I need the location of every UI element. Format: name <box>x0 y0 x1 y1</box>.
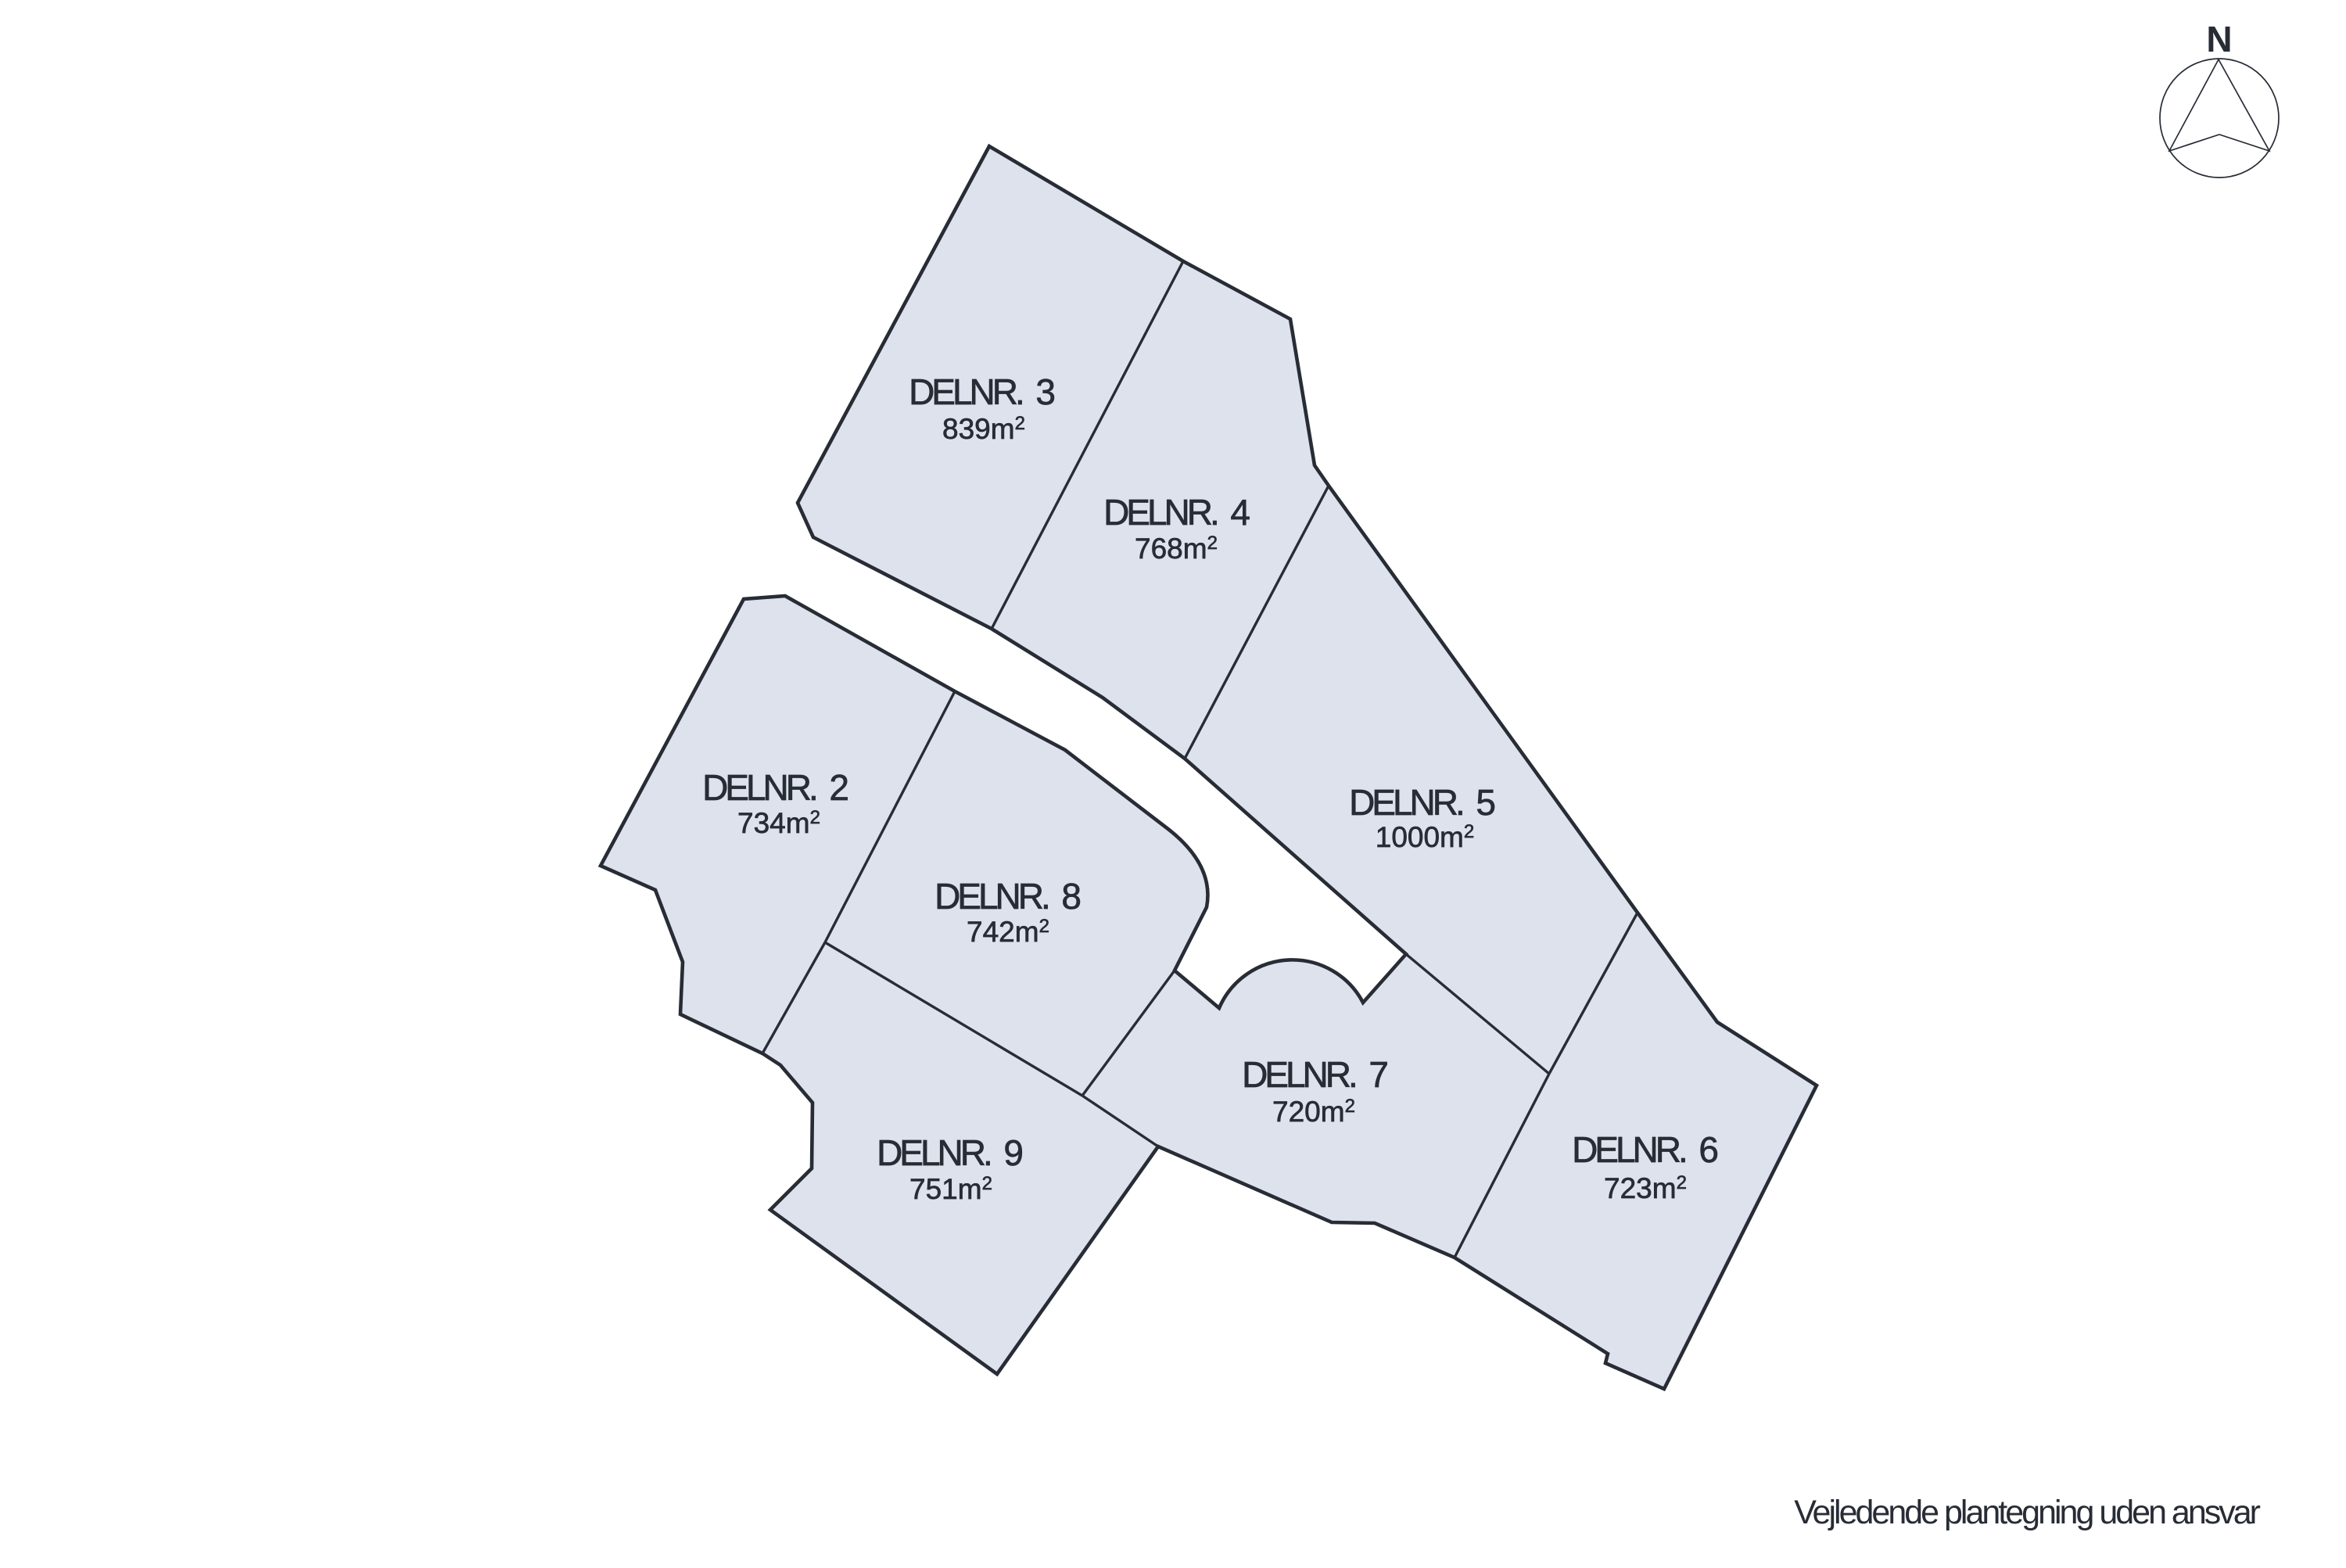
svg-text:DELNR. 5: DELNR. 5 <box>1349 782 1494 823</box>
svg-text:N: N <box>2206 19 2232 59</box>
svg-text:DELNR. 4: DELNR. 4 <box>1103 492 1250 533</box>
svg-text:DELNR. 6: DELNR. 6 <box>1572 1129 1717 1170</box>
svg-text:DELNR. 9: DELNR. 9 <box>877 1132 1022 1173</box>
svg-text:DELNR. 3: DELNR. 3 <box>909 371 1054 412</box>
svg-text:734m2: 734m2 <box>737 807 820 839</box>
svg-text:768m2: 768m2 <box>1135 533 1218 565</box>
svg-text:1000m2: 1000m2 <box>1376 821 1475 853</box>
svg-text:DELNR. 2: DELNR. 2 <box>702 767 848 808</box>
svg-text:723m2: 723m2 <box>1604 1172 1687 1204</box>
svg-text:DELNR. 7: DELNR. 7 <box>1242 1054 1387 1095</box>
svg-text:742m2: 742m2 <box>967 916 1049 948</box>
svg-text:839m2: 839m2 <box>942 413 1025 445</box>
svg-text:751m2: 751m2 <box>909 1173 992 1205</box>
svg-text:DELNR. 8: DELNR. 8 <box>934 876 1080 917</box>
svg-text:Vejledende plantegning uden an: Vejledende plantegning uden ansvar <box>1794 1494 2260 1531</box>
svg-text:720m2: 720m2 <box>1272 1096 1355 1128</box>
